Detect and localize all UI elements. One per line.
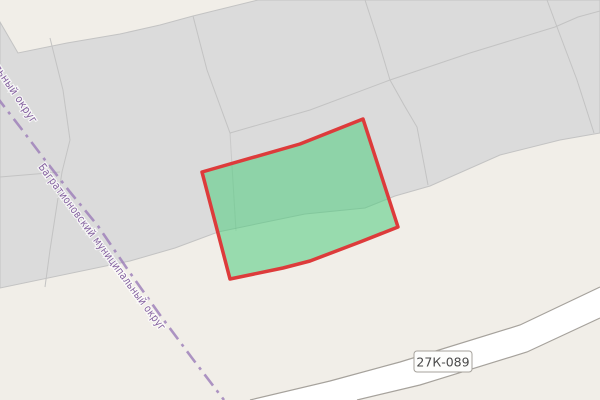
map-canvas[interactable]: альный округ Багратионовский муниципальн…	[0, 0, 600, 400]
map-frame: альный округ Багратионовский муниципальн…	[0, 0, 600, 400]
road-ref-label: 27К-089	[416, 355, 469, 370]
road-ref-badge: 27К-089	[414, 351, 472, 372]
